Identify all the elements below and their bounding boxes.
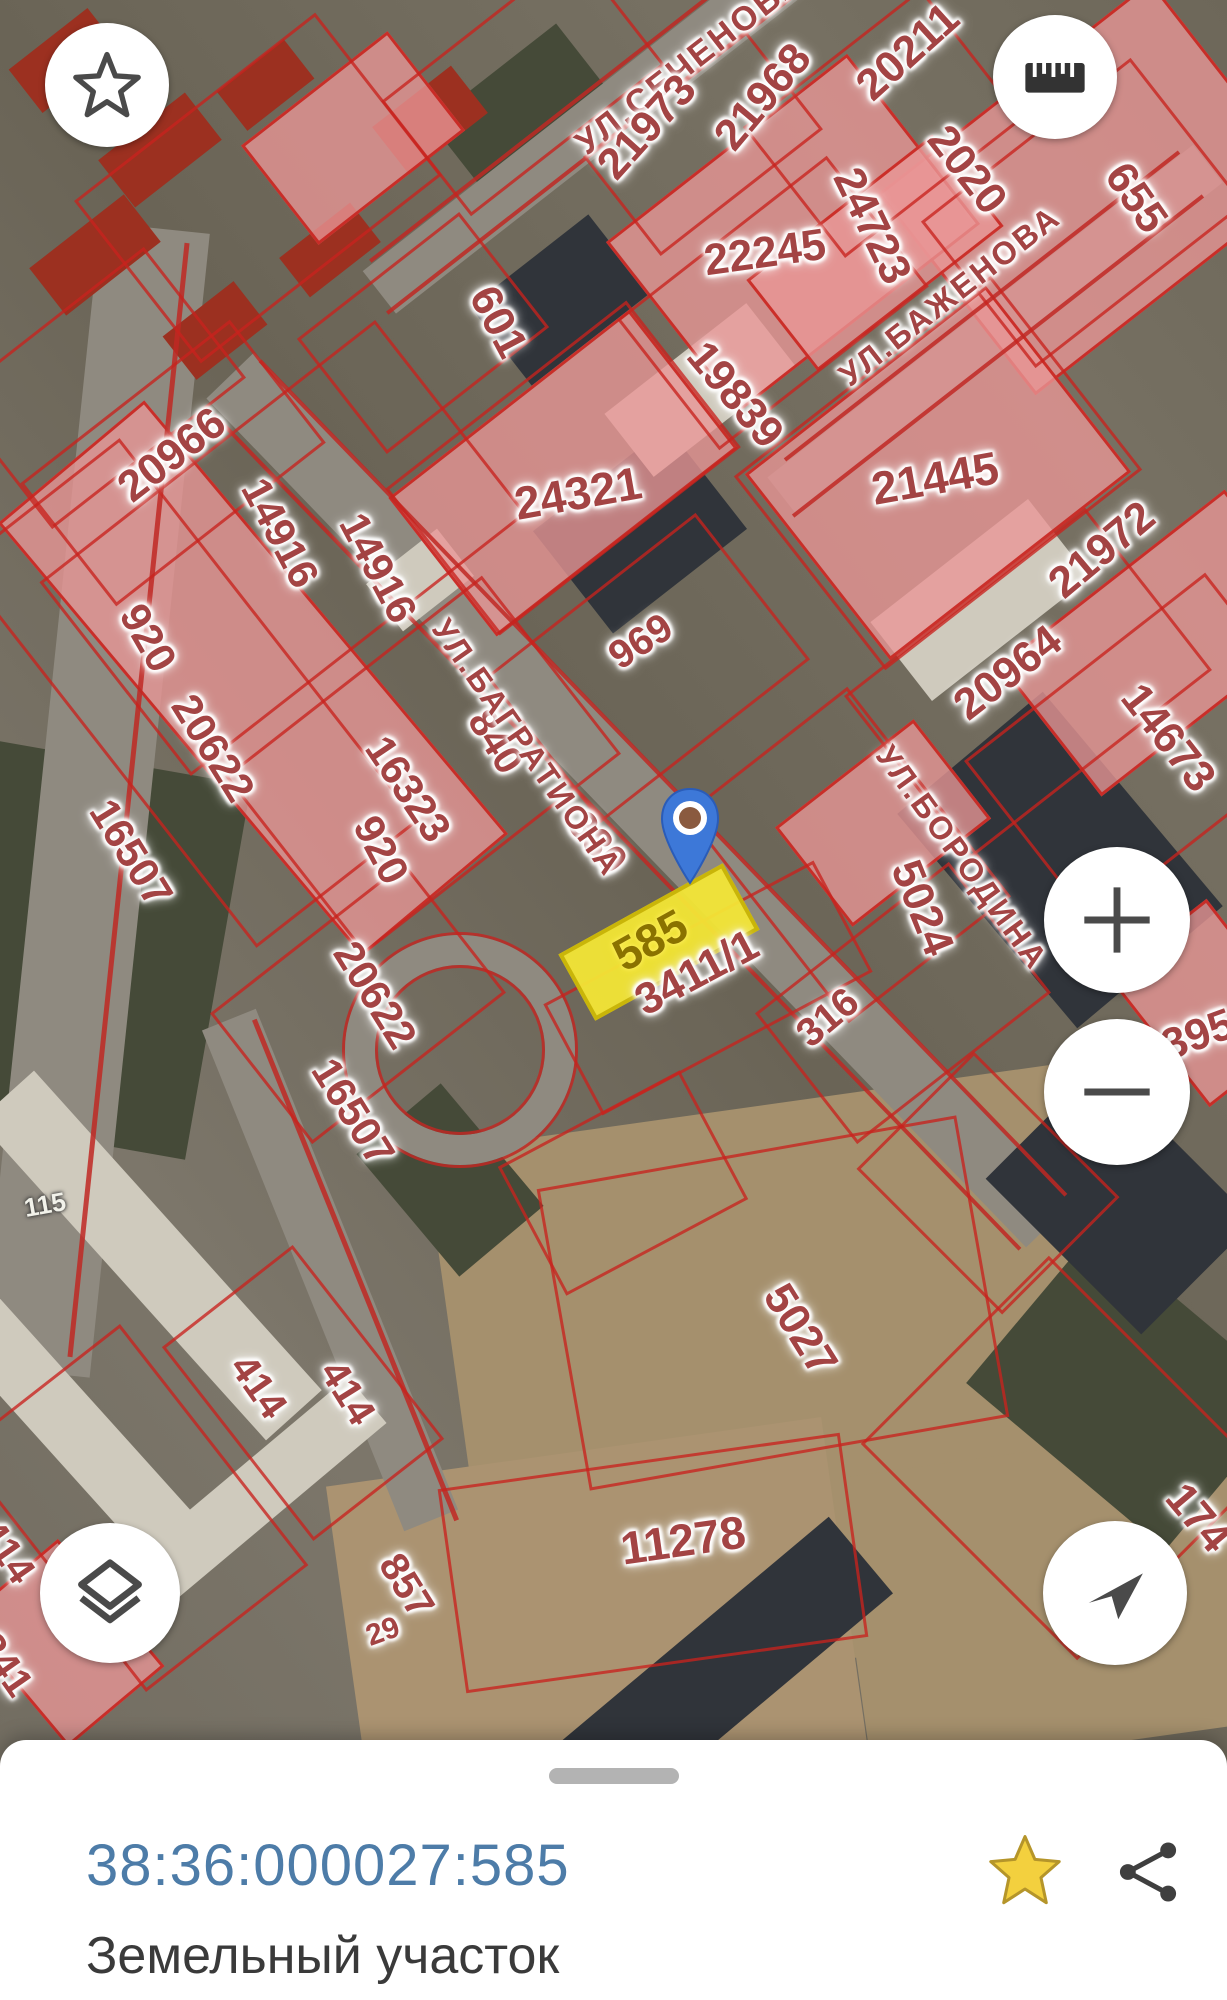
parcel-label[interactable]: 655 (1094, 154, 1177, 243)
star-outline-icon (69, 47, 145, 123)
navigation-arrow-icon (1074, 1552, 1156, 1634)
parcel-label[interactable]: 20622 (162, 686, 265, 810)
bottom-sheet[interactable]: 38:36:000027:585 Земельный участок (0, 1740, 1227, 2000)
parcel-label[interactable]: 115 (22, 1186, 69, 1224)
parcel-label[interactable]: 20622 (324, 933, 427, 1057)
zoom-in-button[interactable] (1044, 847, 1190, 993)
parcel-label[interactable]: 24321 (510, 455, 645, 530)
parcel-label[interactable]: 414 (0, 1512, 44, 1592)
share-icon[interactable] (1112, 1836, 1184, 1908)
parcel-label[interactable]: 20966 (108, 398, 235, 513)
parcel-label[interactable]: 601 (459, 278, 538, 366)
parcel-label[interactable]: 14916 (231, 470, 328, 596)
parcel-label[interactable]: 21972 (1039, 492, 1165, 609)
minus-icon (1074, 1049, 1160, 1135)
parcel-label[interactable]: 19839 (677, 332, 794, 458)
parcel-label[interactable]: 11278 (617, 1505, 749, 1576)
parcel-label[interactable]: 16507 (302, 1050, 405, 1174)
map-labels-layer: УЛ.СЕЧЕНОВА21973219682021120206552224524… (0, 0, 1227, 2000)
ruler-icon (1016, 38, 1094, 116)
parcel-label[interactable]: 20964 (944, 616, 1071, 731)
street-label: УЛ.БАГРАТИОНА (424, 612, 630, 884)
zoom-out-button[interactable] (1044, 1019, 1190, 1165)
parcel-label[interactable]: 14673 (1111, 674, 1226, 801)
parcel-label[interactable]: 14916 (329, 505, 426, 631)
parcel-label[interactable]: 5027 (753, 1275, 847, 1385)
parcel-label[interactable]: 24723 (823, 160, 922, 292)
layers-icon (68, 1551, 152, 1635)
drag-handle[interactable] (549, 1768, 679, 1784)
map-pin-icon (660, 787, 720, 885)
parcel-label[interactable]: 316 (788, 979, 868, 1056)
measure-button[interactable] (993, 15, 1117, 139)
cadastral-map-app: { "map": { "labels": [ {"t":"УЛ.СЕЧЕНОВА… (0, 0, 1227, 2000)
favorite-star-icon[interactable] (987, 1832, 1063, 1908)
parcel-label[interactable]: 20211 (847, 0, 970, 111)
parcel-label[interactable]: 920 (110, 596, 187, 681)
parcel-label[interactable]: 414 (220, 1347, 295, 1427)
parcel-label[interactable]: 16507 (80, 791, 183, 915)
cadastral-number[interactable]: 38:36:000027:585 (86, 1832, 570, 1899)
parcel-label[interactable]: 22245 (701, 220, 829, 287)
parcel-label[interactable]: 21445 (867, 440, 1002, 515)
parcel-label[interactable]: 414 (310, 1353, 384, 1433)
parcel-label[interactable]: 241 (0, 1625, 42, 1705)
parcel-label[interactable]: 2020 (917, 116, 1017, 224)
object-type-label: Земельный участок (86, 1926, 559, 1986)
compass-button[interactable] (1043, 1521, 1187, 1665)
map-canvas[interactable]: УЛ.СЕЧЕНОВА21973219682021120206552224524… (0, 0, 1227, 2000)
plus-icon (1074, 877, 1160, 963)
layers-button[interactable] (40, 1523, 180, 1663)
parcel-label[interactable]: 969 (601, 605, 681, 679)
favorites-button[interactable] (45, 23, 169, 147)
